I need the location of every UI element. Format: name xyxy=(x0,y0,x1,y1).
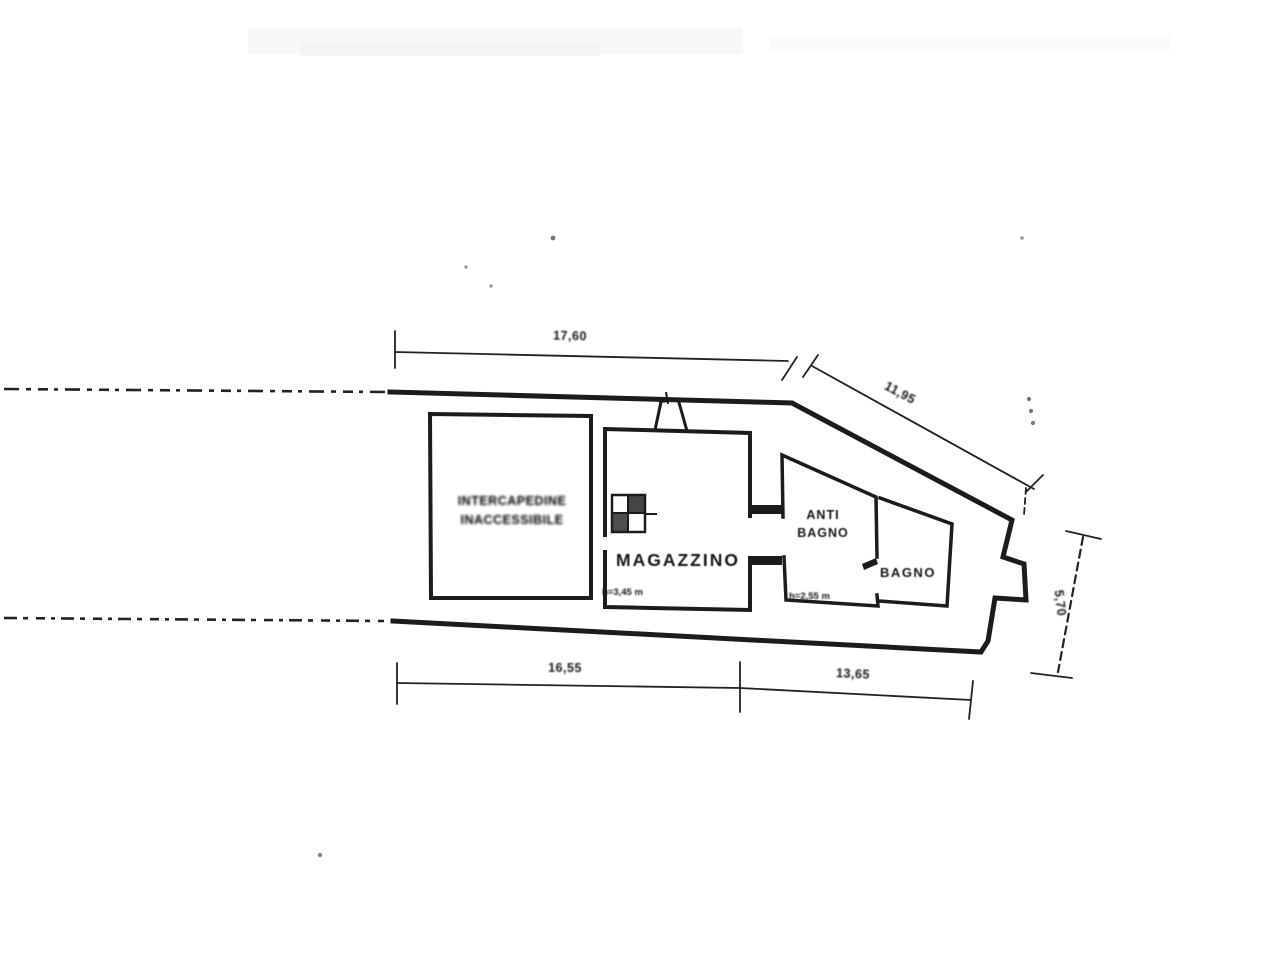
floor-plan-drawing xyxy=(0,0,1280,960)
room-label-cavity-line2: INACCESSIBILE xyxy=(437,511,587,530)
room-note-antibagno-height: h=2,55 m xyxy=(789,591,851,602)
room-label-cavity: INTERCAPEDINE INACCESSIBILE xyxy=(437,492,587,530)
room-label-magazzino: MAGAZZINO xyxy=(606,550,750,571)
dimension-top-width: 17,60 xyxy=(530,328,610,344)
room-label-cavity-line1: INTERCAPEDINE xyxy=(437,492,587,511)
room-bagno-outline xyxy=(879,498,952,606)
boundary-dashed-lines xyxy=(4,389,386,621)
dimension-bottom-left: 16,55 xyxy=(525,660,605,675)
room-label-antibagno: ANTI BAGNO xyxy=(784,506,862,542)
shaft-hatch-symbol xyxy=(612,495,657,532)
room-label-bagno: BAGNO xyxy=(872,565,944,580)
room-label-antibagno-line1: ANTI xyxy=(784,506,862,524)
scan-artifact-band xyxy=(248,28,1170,56)
room-label-antibagno-line2: BAGNO xyxy=(784,524,862,542)
floor-plan-page: INTERCAPEDINE INACCESSIBILE MAGAZZINO h=… xyxy=(0,0,1280,960)
room-note-magazzino-height: h=3,45 m xyxy=(602,587,672,598)
scan-specks xyxy=(318,236,1035,858)
